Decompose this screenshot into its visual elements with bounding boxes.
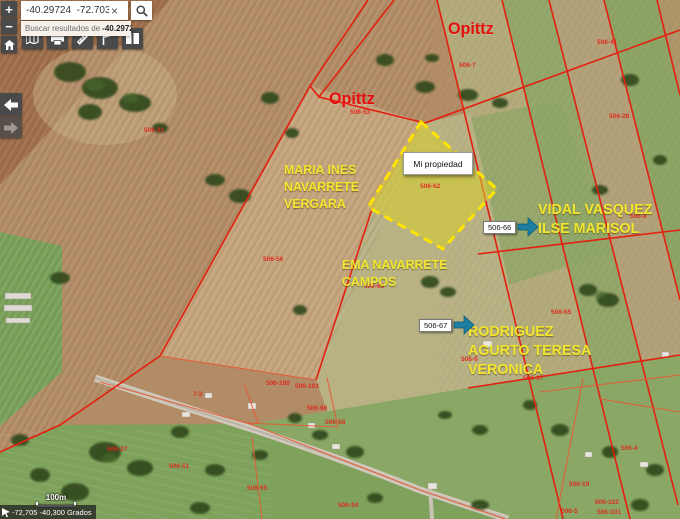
parcel-number: 506-100: [266, 380, 290, 387]
owner-label-line: VERGARA: [284, 195, 359, 212]
parcel-number: 506-27: [107, 446, 127, 453]
parcel-number: 506-5: [561, 508, 578, 515]
previous-extent-button[interactable]: [0, 93, 22, 116]
parcel-number: 506-60: [307, 405, 327, 412]
parcel-callout-label: 506-66: [483, 221, 516, 234]
parcel-number: 506-41: [597, 39, 617, 46]
parcel-number: 506-103: [295, 383, 319, 390]
suggestion-prefix: Buscar resultados de: [25, 24, 100, 33]
owner-label-maria: MARIA INES NAVARRETE VERGARA: [284, 161, 359, 212]
search-suggestion[interactable]: Buscar resultados de -40.29724 -7…: [21, 21, 131, 36]
next-extent-button[interactable]: [0, 117, 22, 138]
search-bar: ×: [21, 1, 152, 20]
owner-label-line: NAVARRETE: [284, 178, 359, 195]
parcel-callout-506-66: 506-66: [483, 216, 539, 238]
owner-label-line: VERONICA: [468, 360, 591, 379]
owner-label-rodriguez: RODRIGUEZ AGURTO TERESA VERONICA: [468, 322, 591, 379]
parcel-callout-label: 506-67: [419, 319, 452, 332]
parcel-number: 506-28: [609, 113, 629, 120]
parcel-number: 506-34: [338, 502, 358, 509]
search-box: ×: [21, 1, 128, 20]
search-input[interactable]: [21, 5, 109, 16]
parcel-number: 506-51: [169, 463, 189, 470]
parcel-number: 506-55: [247, 485, 267, 492]
owner-label-line: VIDAL VASQUEZ: [538, 200, 652, 219]
arrow-left-icon: [4, 99, 18, 111]
parcel-number: 506-7: [459, 62, 476, 69]
parcel-number: 506-31: [144, 127, 164, 134]
satellite-imagery: [0, 0, 680, 519]
parcel-number: 506-65: [551, 309, 571, 316]
cursor-icon: [2, 508, 10, 517]
my-property-label: Mi propiedad: [403, 152, 473, 175]
scale-label: 100m: [36, 493, 76, 502]
owner-label-line: AGURTO TERESA: [468, 341, 591, 360]
search-icon: [136, 5, 148, 17]
zoom-in-button[interactable]: +: [1, 1, 17, 17]
parcel-number: 506-19: [569, 481, 589, 488]
owner-label-vidal: VIDAL VASQUEZ ILSE MARISOL: [538, 200, 652, 238]
owner-label-line: ILSE MARISOL: [538, 219, 652, 238]
callout-arrow-icon: [517, 216, 539, 238]
owner-label-line: RODRIGUEZ: [468, 322, 591, 341]
parcel-number: 506-4: [621, 445, 638, 452]
cursor-coordinates: -72,705 -40,300 Grados: [0, 505, 96, 519]
arrow-right-icon: [4, 122, 18, 134]
owner-label-line: CAMPOS: [342, 273, 447, 290]
clear-search-icon[interactable]: ×: [109, 5, 120, 17]
parcel-number: 506-62: [420, 183, 440, 190]
owner-label-line: EMA NAVARRETE: [342, 256, 447, 273]
home-button[interactable]: [1, 36, 17, 53]
map-viewport[interactable]: Opittz Opittz MARIA INES NAVARRETE VERGA…: [0, 0, 680, 519]
parcel-number: 7-2: [193, 391, 202, 398]
parcel-number: 506-58: [325, 419, 345, 426]
parcel-number: 506-56: [263, 256, 283, 263]
owner-label-line: MARIA INES: [284, 161, 359, 178]
home-icon: [4, 40, 15, 50]
owner-label-ema: EMA NAVARRETE CAMPOS: [342, 256, 447, 290]
parcel-callout-506-67: 506-67: [419, 314, 475, 336]
zoom-out-button[interactable]: −: [1, 18, 17, 34]
callout-arrow-icon: [453, 314, 475, 336]
search-button[interactable]: [131, 1, 152, 20]
parcel-number: 506-53: [350, 109, 370, 116]
owner-label-opittz-north: Opittz: [448, 20, 494, 37]
owner-label-opittz-west: Opittz: [329, 90, 375, 107]
cursor-coordinates-text: -72,705 -40,300 Grados: [12, 508, 92, 517]
parcel-number: 506-101: [597, 509, 621, 516]
parcel-number: 506-102: [595, 499, 619, 506]
suggestion-term: -40.29724 -7…: [102, 24, 131, 33]
